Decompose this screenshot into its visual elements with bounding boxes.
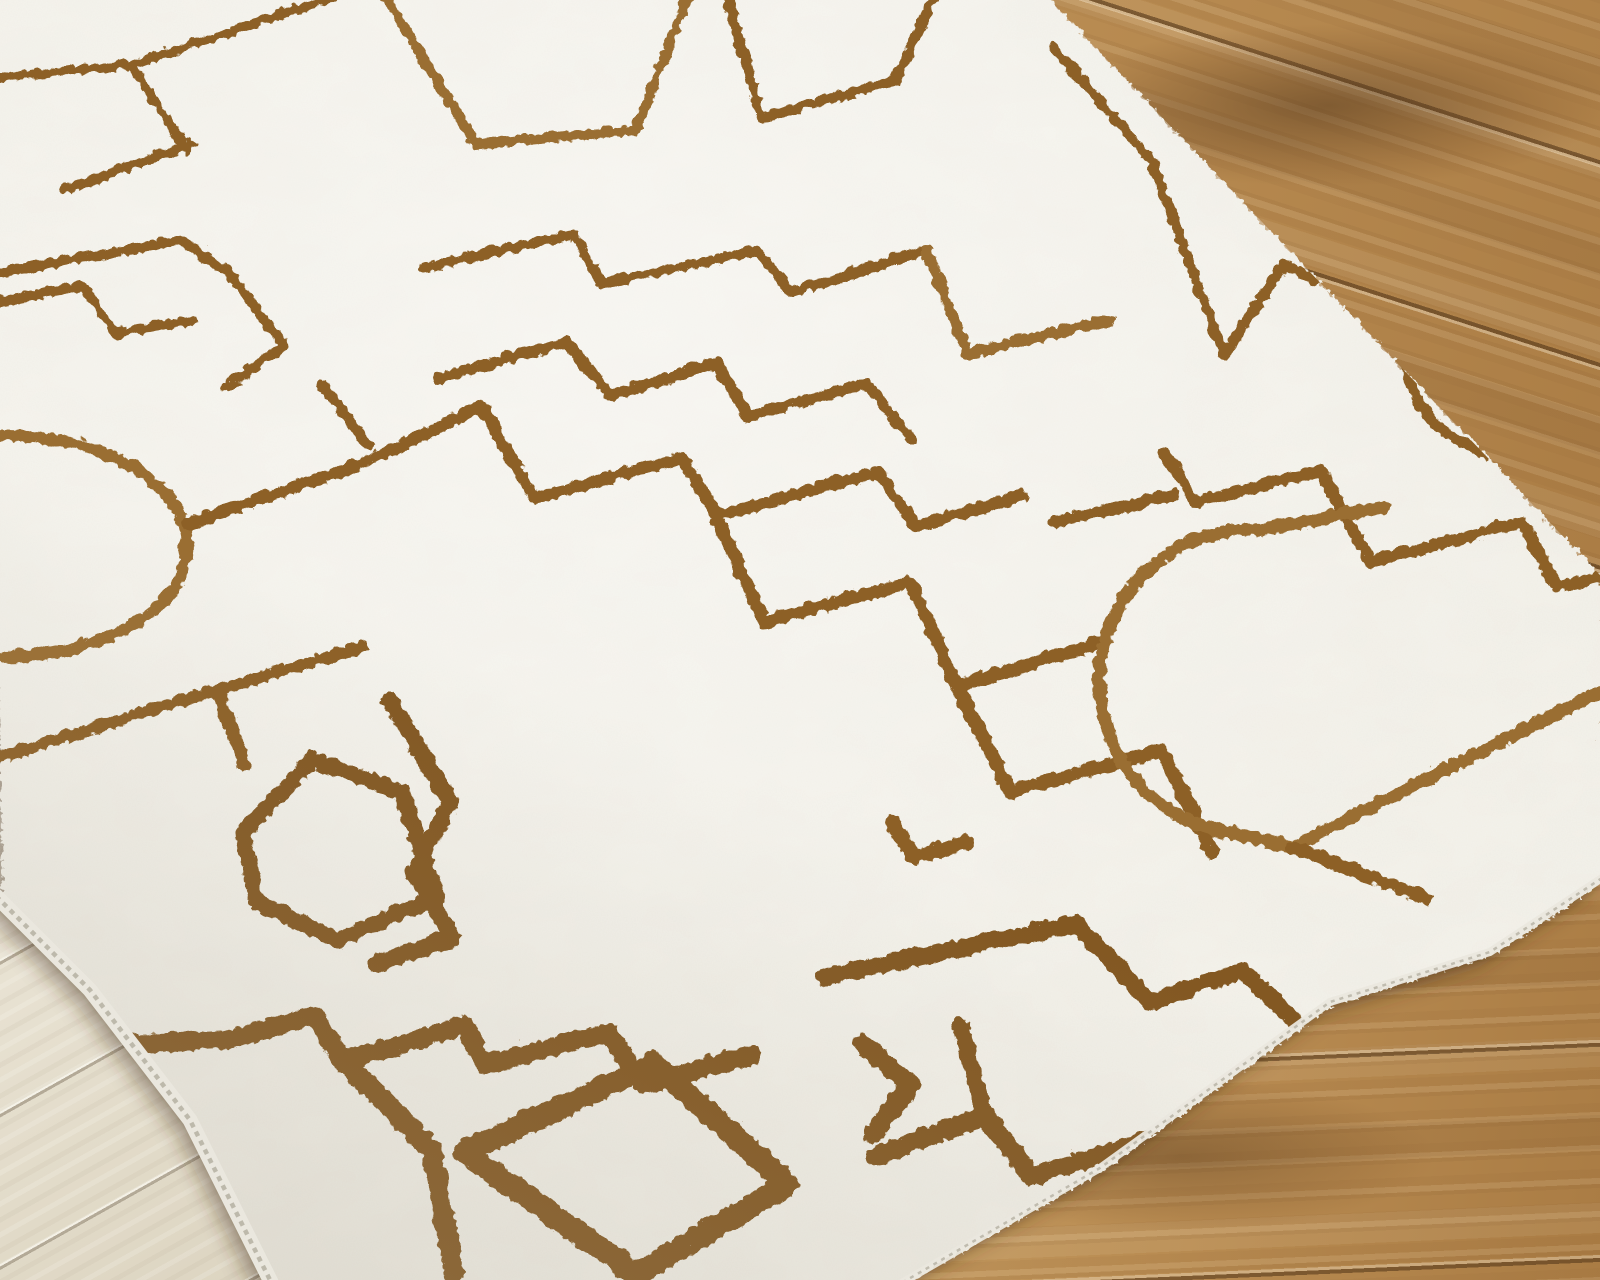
rug-layer [0,0,1600,1280]
rug-product-photo [0,0,1600,1280]
rug-vignette [0,0,1600,1280]
rug [0,0,1600,1280]
